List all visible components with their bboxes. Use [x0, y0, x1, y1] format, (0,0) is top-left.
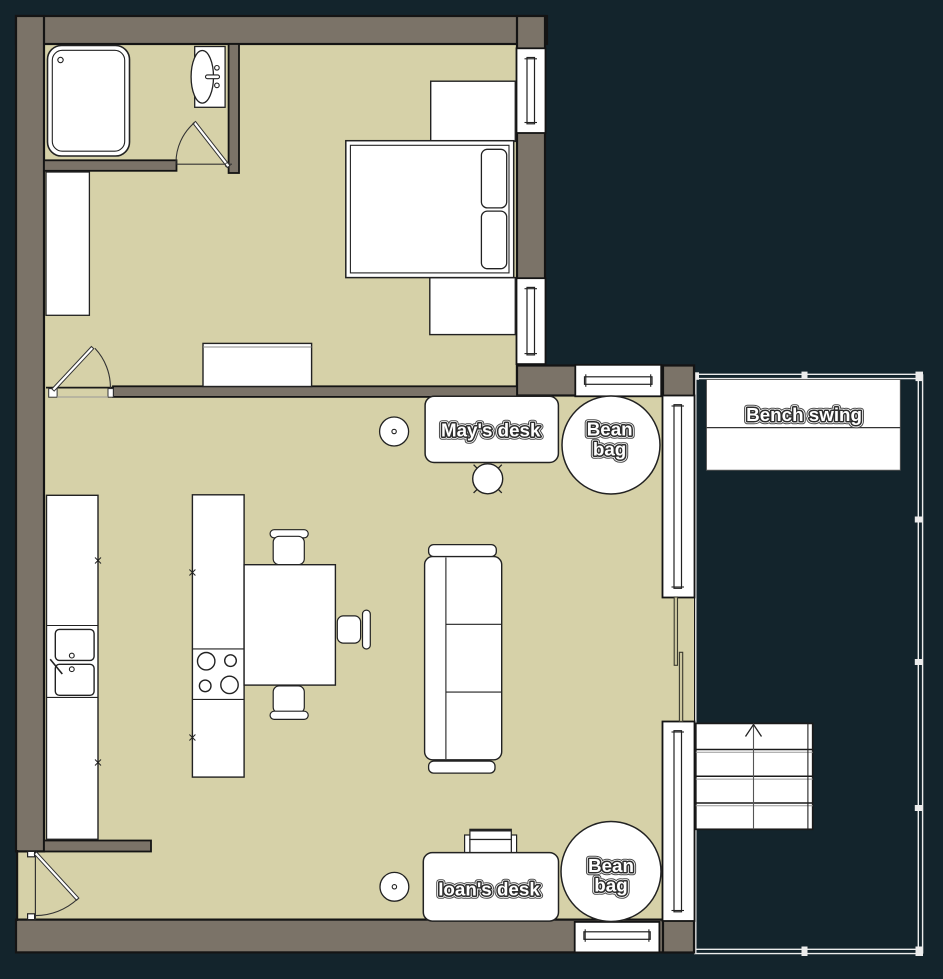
svg-text:bag: bag: [594, 874, 627, 895]
svg-text:Bean: Bean: [588, 855, 634, 876]
svg-text:Bench swing: Bench swing: [746, 404, 862, 425]
svg-text:Bean: Bean: [587, 419, 633, 440]
svg-text:May's desk: May's desk: [441, 419, 541, 440]
svg-text:Ioan's desk: Ioan's desk: [438, 879, 540, 900]
svg-text:bag: bag: [593, 438, 626, 459]
